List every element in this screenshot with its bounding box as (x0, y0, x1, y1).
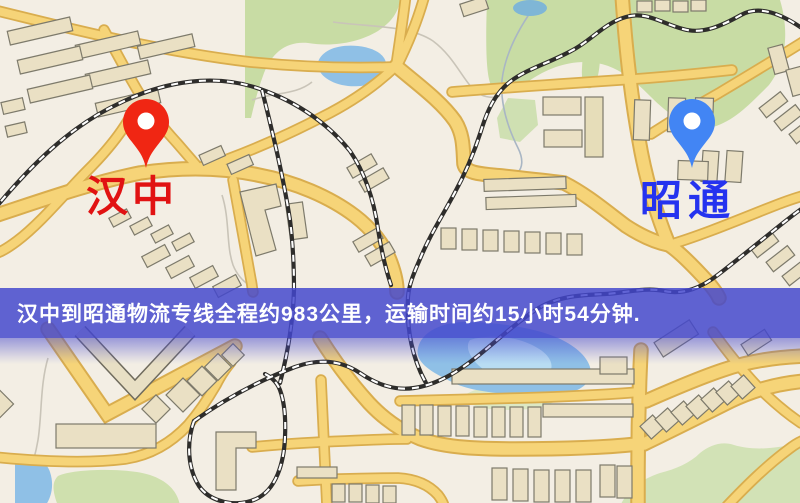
blue-map-pin-icon (668, 99, 716, 169)
route-info-banner: 汉中到昭通物流专线全程约983公里，运输时间约15小时54分钟. (0, 288, 800, 338)
origin-city-label: 汉中 (86, 176, 178, 218)
route-info-text: 汉中到昭通物流专线全程约983公里，运输时间约15小时54分钟. (17, 298, 641, 328)
origin-pin[interactable] (122, 99, 170, 169)
destination-pin[interactable] (668, 99, 716, 169)
destination-city-label: 昭通 (640, 180, 736, 222)
red-map-pin-icon (122, 99, 170, 169)
logistics-route-map: 汉中 昭通 汉中到昭通物流专线全程约983公里，运输时间约15小时54分钟. (0, 0, 800, 503)
map-canvas (0, 0, 800, 503)
